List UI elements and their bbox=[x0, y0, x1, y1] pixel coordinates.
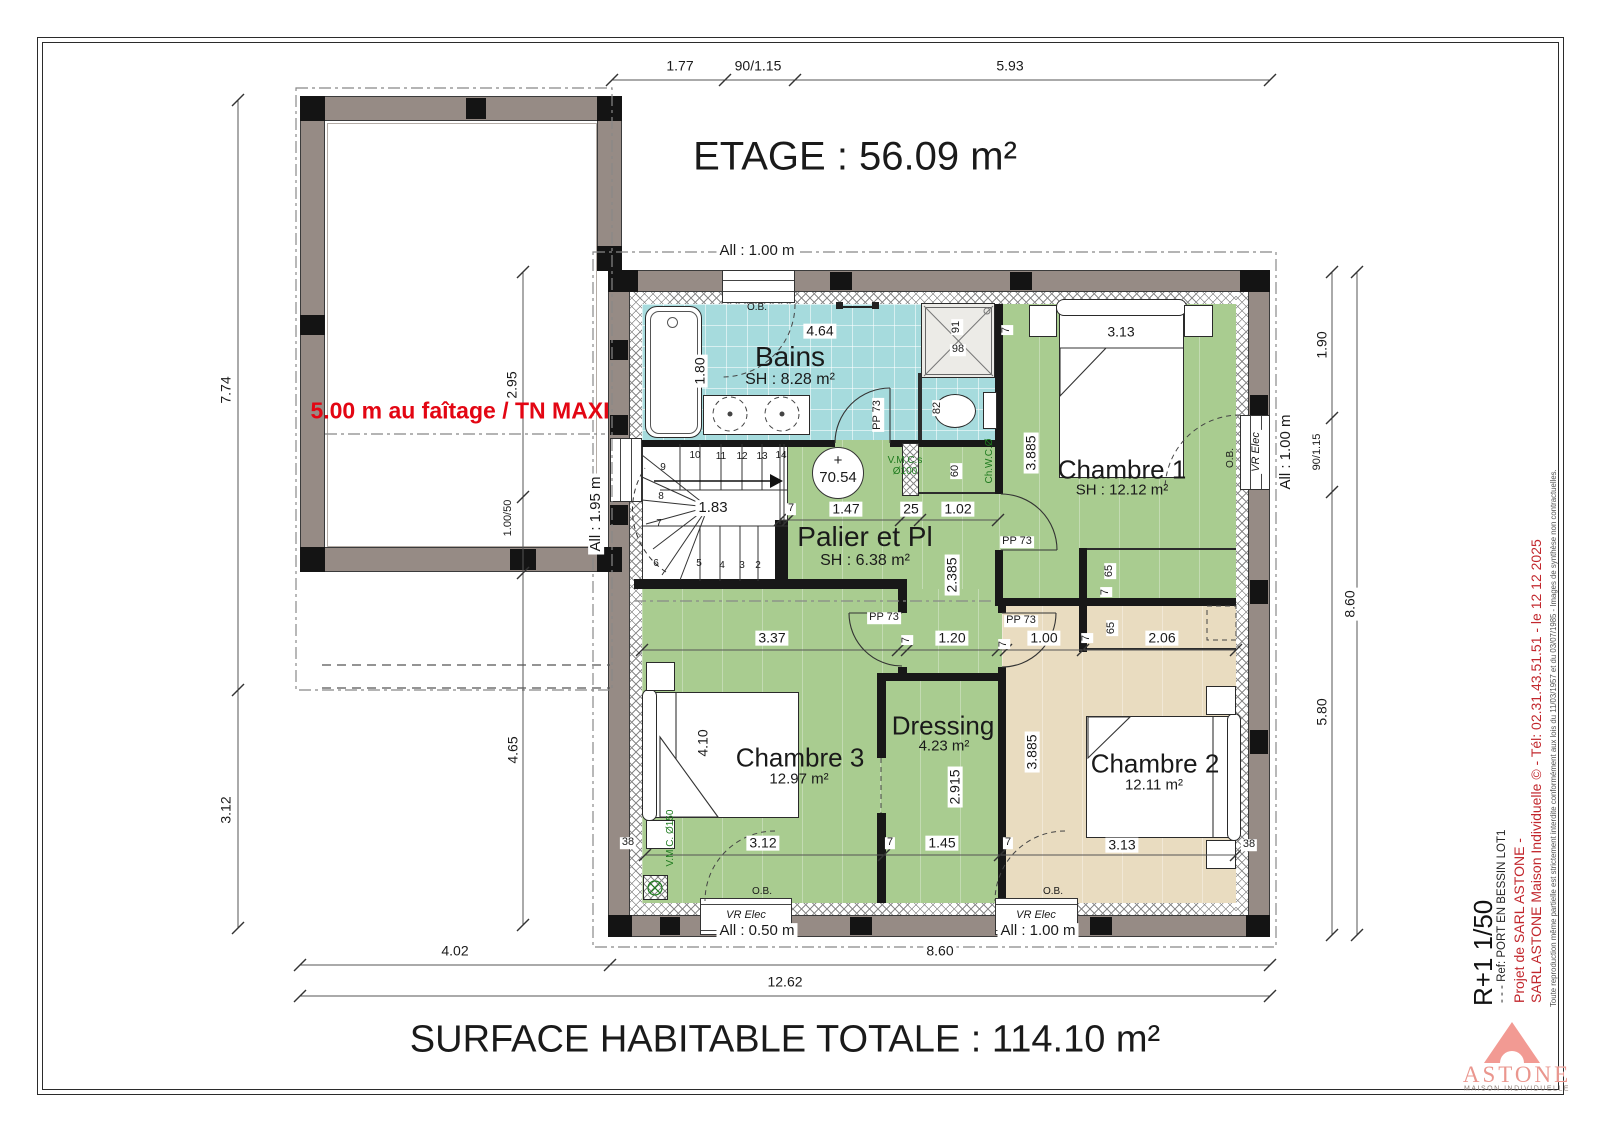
floor-title: ETAGE : 56.09 m² bbox=[693, 135, 1017, 180]
vmc-symbol bbox=[648, 881, 662, 895]
dim-corridor: 1.20 bbox=[935, 631, 968, 646]
dim-left-1: 7.74 bbox=[219, 373, 234, 406]
vmc150-label: V.M.C. Ø150 bbox=[666, 809, 677, 868]
dim-mid-3: 4.65 bbox=[506, 733, 521, 766]
room-area-chambre3: 12.97 m² bbox=[769, 771, 828, 788]
dim-wall7: 7 bbox=[901, 635, 913, 645]
towel-bar bbox=[837, 303, 878, 308]
dim-palier-1: 1.47 bbox=[829, 502, 862, 517]
dim-wall7: 7 bbox=[1003, 837, 1013, 849]
window-ob-label: O.B. bbox=[746, 303, 768, 314]
door-label-chambre3: PP 73 bbox=[867, 612, 901, 624]
dim-top-window: 90/1.15 bbox=[732, 59, 785, 74]
window-swing-arcs bbox=[705, 304, 1240, 901]
wc-duct-label: Ch.W.C.Ø bbox=[985, 437, 996, 484]
dim-bottom-total: 12.62 bbox=[764, 975, 805, 990]
astone-logo-text: ASTONE bbox=[1460, 1063, 1574, 1087]
door-label-bains: PP 73 bbox=[872, 398, 884, 432]
dim-chambre3-w-top: 3.37 bbox=[755, 631, 788, 646]
project-line1: Projet de SARL ASTONE - bbox=[1511, 838, 1527, 1003]
stair-step: 2 bbox=[754, 561, 762, 572]
dim-bathtub: 1.80 bbox=[693, 354, 708, 387]
window-sill-label: All : 1.00 m bbox=[716, 243, 797, 259]
window-sill-label: All : 1.95 m bbox=[588, 473, 604, 554]
dim-bottom-2: 8.60 bbox=[923, 944, 956, 959]
dim-wall38: 38 bbox=[620, 837, 636, 849]
dim-bains-width: 4.64 bbox=[803, 324, 836, 339]
window-sill-label: All : 1.00 m bbox=[1278, 411, 1294, 492]
dim-wall7: 7 bbox=[1001, 325, 1013, 335]
ridge-height-note: 5.00 m au faîtage / TN MAXI bbox=[310, 398, 609, 425]
dim-wall7: 7 bbox=[1081, 633, 1093, 643]
dim-closet65: 65 bbox=[1106, 620, 1118, 636]
dim-stairs: 1.83 bbox=[695, 500, 730, 516]
shower-lines bbox=[924, 306, 993, 376]
dim-palier-h: 2.385 bbox=[945, 554, 960, 595]
dim-chambre1-h: 3.885 bbox=[1024, 432, 1039, 473]
astone-logo-mark bbox=[1484, 1022, 1540, 1063]
stair-step: 6 bbox=[652, 559, 660, 570]
dim-chambre2-w: 3.13 bbox=[1105, 838, 1138, 853]
dim-dressing-w: 1.45 bbox=[925, 836, 958, 851]
dim-left-2: 3.12 bbox=[219, 793, 234, 826]
dim-mid-1: 2.95 bbox=[505, 368, 520, 401]
dim-mid-2: 1.00/50 bbox=[503, 498, 515, 539]
room-area-dressing: 4.23 m² bbox=[919, 738, 970, 755]
dim-top-1: 1.77 bbox=[663, 59, 696, 74]
dim-shower-w: 91 bbox=[951, 319, 963, 335]
room-area-chambre2: 12.11 m² bbox=[1125, 777, 1183, 794]
stair-step: 4 bbox=[718, 561, 726, 572]
stair-step: 7 bbox=[655, 519, 663, 530]
dim-right-2: 5.80 bbox=[1315, 695, 1330, 728]
sink-drain bbox=[780, 412, 785, 417]
window-ob-label: O.B. bbox=[751, 887, 773, 898]
stair-step: 10 bbox=[688, 451, 701, 462]
dim-closet60: 60 bbox=[950, 463, 962, 479]
stair-step: 11 bbox=[715, 452, 727, 463]
project-line2: SARL ASTONE Maison Individuelle © - Tél:… bbox=[1528, 539, 1544, 1003]
astone-logo-subtext: MAISON INDIVIDUELLE bbox=[1461, 1085, 1573, 1092]
dim-closet65: 65 bbox=[1104, 563, 1116, 579]
garage-roof-dashed bbox=[322, 665, 610, 688]
sink-drain bbox=[728, 412, 733, 417]
room-area-bains: SH : 8.28 m² bbox=[745, 371, 835, 389]
stair-step: 8 bbox=[657, 492, 665, 503]
dim-chambre3-h: 4.10 bbox=[696, 726, 711, 759]
door-label-chambre1: PP 73 bbox=[1000, 536, 1034, 548]
window-ob-label: O.B. bbox=[1226, 447, 1237, 469]
door-label-chambre2: PP 73 bbox=[1004, 615, 1038, 627]
dim-closet-w: 2.06 bbox=[1145, 631, 1178, 646]
window-sill-label: All : 1.00 m bbox=[997, 923, 1078, 939]
copyright-disclaimer: Toute reproduction même partielle est st… bbox=[1549, 469, 1558, 1007]
stair-step: 1 bbox=[773, 561, 781, 572]
dim-bottom-1: 4.02 bbox=[438, 944, 471, 959]
plan-scale: R+1 1/50 bbox=[1468, 900, 1499, 1006]
dim-wall38: 38 bbox=[1241, 839, 1257, 851]
total-area-title: SURFACE HABITABLE TOTALE : 114.10 m² bbox=[410, 1019, 1160, 1062]
stair-step: 14 bbox=[774, 451, 787, 462]
room-name-chambre3: Chambre 3 bbox=[736, 743, 865, 774]
dim-shower-h: 98 bbox=[950, 344, 966, 356]
window-sill-label: All : 0.50 m bbox=[716, 923, 797, 939]
dim-chambre3-w: 3.12 bbox=[746, 836, 779, 851]
level-plus: + bbox=[831, 453, 846, 469]
shutter-label: VR Elec bbox=[1251, 430, 1263, 474]
dim-wall7: 7 bbox=[998, 639, 1010, 649]
dim-right-window: 90/1.15 bbox=[1312, 432, 1324, 473]
vmc-diameter-label: Ø100 bbox=[892, 467, 918, 478]
stair-step: 5 bbox=[695, 559, 703, 570]
dim-top-2: 5.93 bbox=[993, 59, 1026, 74]
level-value: 70.54 bbox=[816, 470, 860, 486]
dim-wall7: 7 bbox=[1100, 587, 1112, 597]
dim-palier-2: 25 bbox=[900, 502, 922, 517]
dim-wall7: 7 bbox=[885, 837, 895, 849]
dim-right-total: 8.60 bbox=[1343, 587, 1358, 620]
room-area-palier: SH : 6.38 m² bbox=[820, 552, 910, 570]
shutter-label: VR Elec bbox=[1014, 910, 1058, 922]
dim-dressing-h: 2.915 bbox=[948, 766, 963, 807]
stair-step: 13 bbox=[755, 452, 768, 463]
vmc-label: V.M.C.s bbox=[887, 456, 924, 467]
dim-chambre2-h: 3.885 bbox=[1025, 731, 1040, 772]
dim-chambre2-door: 1.00 bbox=[1027, 631, 1060, 646]
floor-plan-sheet: ETAGE : 56.09 m² SURFACE HABITABLE TOTAL… bbox=[0, 0, 1600, 1131]
dim-chambre1-w: 3.13 bbox=[1104, 325, 1137, 340]
dim-wc: 82 bbox=[932, 400, 944, 416]
roof-outline bbox=[296, 88, 1276, 947]
stair-step: 3 bbox=[738, 561, 746, 572]
room-area-chambre1: SH : 12.12 m² bbox=[1076, 482, 1169, 499]
room-name-bains: Bains bbox=[755, 341, 825, 373]
stair-step: 9 bbox=[659, 463, 667, 474]
stair-direction-arrow bbox=[654, 474, 783, 488]
plan-ref: - - - Ref: PORT EN BESSIN LOT1 bbox=[1496, 830, 1508, 1003]
dim-palier-3: 1.02 bbox=[941, 502, 974, 517]
window-ob-label: O.B. bbox=[1042, 887, 1064, 898]
dim-wall7: 7 bbox=[786, 503, 796, 515]
shutter-label: VR Elec bbox=[724, 910, 768, 922]
room-name-palier: Palier et Pl bbox=[797, 521, 932, 553]
stair-step: 12 bbox=[735, 452, 748, 463]
room-name-chambre2: Chambre 2 bbox=[1091, 749, 1220, 780]
dim-right-1: 1.90 bbox=[1315, 328, 1330, 361]
